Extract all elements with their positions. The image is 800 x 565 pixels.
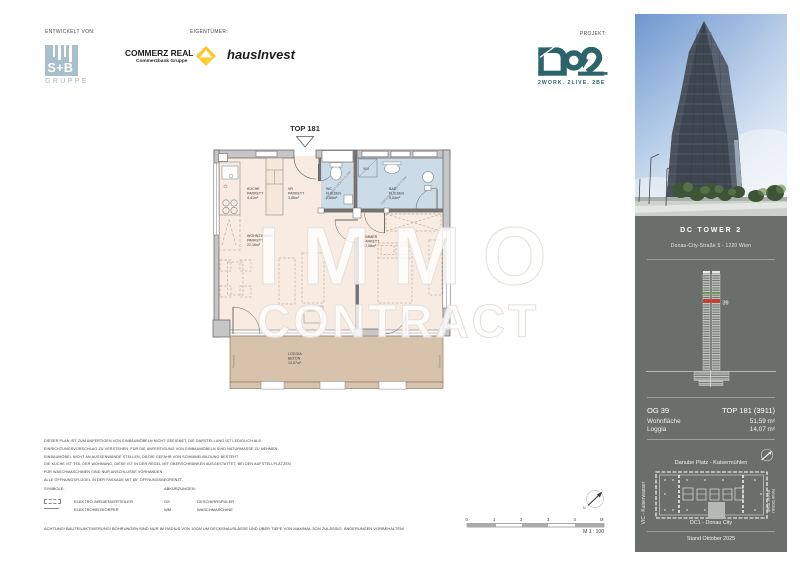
svg-text:2: 2 [520, 517, 523, 522]
svg-text:VR: VR [288, 187, 293, 191]
svg-text:1: 1 [493, 517, 496, 522]
svg-text:BAD: BAD [389, 187, 397, 191]
svg-text:LOGGIA: LOGGIA [288, 352, 302, 356]
svg-text:N: N [583, 506, 586, 510]
svg-text:Trennwand: Trennwand [438, 355, 442, 368]
svg-text:KÜCHE: KÜCHE [247, 187, 260, 191]
svg-text:WM: WM [363, 167, 369, 171]
svg-text:4,41m²: 4,41m² [247, 196, 259, 200]
svg-text:PARKETT: PARKETT [247, 192, 264, 196]
svg-text:0: 0 [466, 517, 469, 522]
svg-text:TOP 181: TOP 181 [290, 124, 320, 133]
svg-text:FLIESEN: FLIESEN [326, 192, 341, 196]
svg-text:4: 4 [574, 517, 577, 522]
svg-text:14,07m²: 14,07m² [288, 361, 302, 365]
svg-text:39: 39 [723, 301, 729, 307]
svg-text:Trennwand: Trennwand [232, 355, 236, 368]
svg-text:WC: WC [326, 187, 332, 191]
svg-text:PARKETT: PARKETT [288, 192, 305, 196]
svg-text:5,84m²: 5,84m² [389, 196, 401, 200]
svg-text:M 1 : 100: M 1 : 100 [583, 529, 604, 535]
svg-text:2,65m²: 2,65m² [326, 196, 338, 200]
svg-text:3,86m²: 3,86m² [288, 196, 300, 200]
svg-text:BETON: BETON [288, 357, 301, 361]
svg-text:M: M [600, 517, 604, 522]
svg-text:FLIESEN: FLIESEN [389, 192, 404, 196]
svg-text:3: 3 [547, 517, 550, 522]
